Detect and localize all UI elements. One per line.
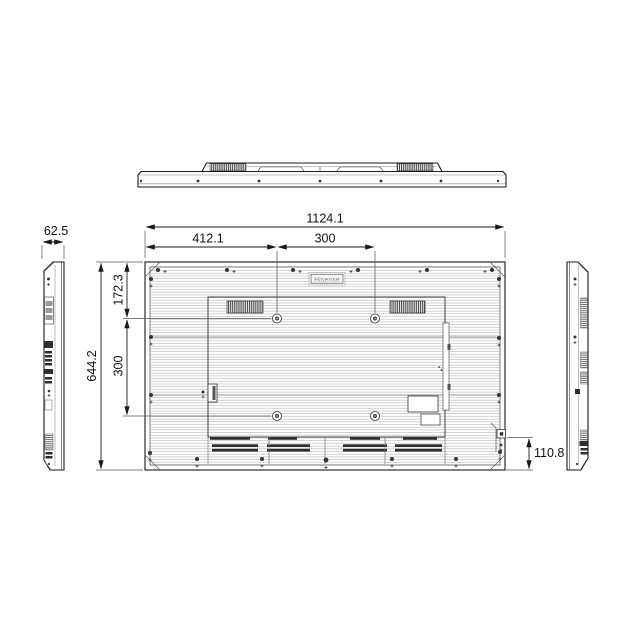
dim-outlet-bottom-offset-text: 110.8 [534,446,564,460]
top-view [138,163,506,187]
dim-vesa-horizontal: 300 [279,232,374,248]
dim-vesa-horizontal-text: 300 [315,232,336,246]
small-label [421,414,440,425]
side-port-hatch [581,298,588,328]
side-vent-hatch [45,434,53,450]
left-side-view [44,262,64,470]
dim-overall-height-text: 644.2 [85,350,99,381]
dim-vesa-left-offset: 412.1 [147,232,276,248]
dim-vesa-left-offset-text: 412.1 [192,232,223,246]
brand-logo-text: Hisense [314,276,340,283]
dim-vesa-vertical-text: 300 [112,356,126,377]
dim-vesa-top-offset-text: 172.3 [112,274,126,305]
dim-vesa-top-offset: 172.3 [112,264,128,318]
rear-view: Hisense [145,262,506,470]
side-switch [575,389,580,394]
rating-label [408,396,438,412]
side-connector-block [45,341,54,348]
brand-logo-plate: Hisense [309,273,345,286]
top-view-body [138,172,506,188]
display-dimension-diagram: Hisense [0,0,630,630]
dim-vesa-vertical: 300 [112,320,128,415]
dim-overall-width: 1124.1 [147,212,504,228]
technical-drawing-page: Hisense [0,0,630,630]
dim-depth-text: 62.5 [44,224,68,238]
dim-overall-width-text: 1124.1 [306,212,343,226]
dim-outlet-bottom-offset: 110.8 [529,439,564,469]
dim-depth: 62.5 [44,224,69,242]
dim-overall-height: 644.2 [85,264,101,469]
right-side-view [567,262,588,470]
